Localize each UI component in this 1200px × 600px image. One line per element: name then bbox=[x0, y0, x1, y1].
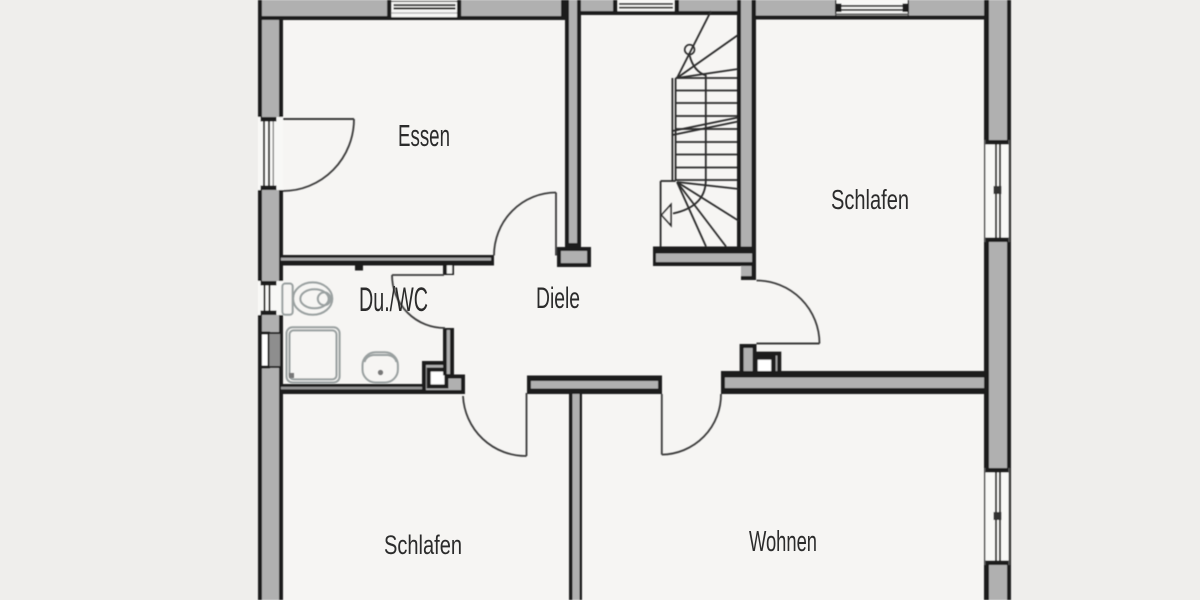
svg-text:Wohnen: Wohnen bbox=[749, 526, 817, 558]
svg-text:Diele: Diele bbox=[536, 282, 580, 315]
svg-text:Du./WC: Du./WC bbox=[359, 281, 428, 319]
svg-text:Schlafen: Schlafen bbox=[384, 530, 462, 560]
svg-text:Essen: Essen bbox=[398, 118, 450, 153]
svg-text:Schlafen: Schlafen bbox=[831, 184, 909, 215]
